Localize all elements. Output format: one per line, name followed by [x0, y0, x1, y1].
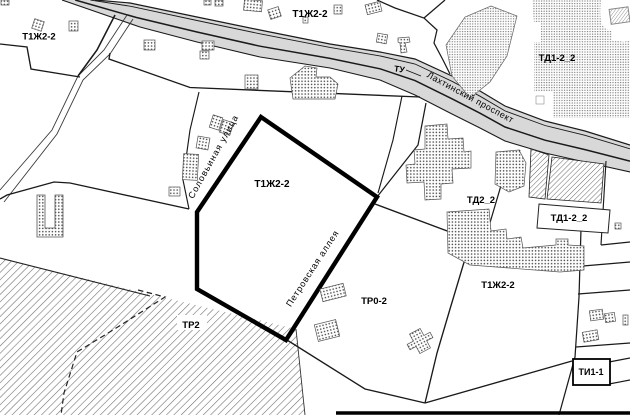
svg-text:ТИ1-1: ТИ1-1: [579, 367, 604, 377]
svg-text:ТР0-2: ТР0-2: [361, 296, 387, 307]
svg-text:Т1Ж2-2: Т1Ж2-2: [22, 32, 55, 43]
svg-text:Т1Ж2-2: Т1Ж2-2: [254, 179, 290, 190]
svg-text:ТУ: ТУ: [394, 63, 406, 74]
svg-text:Т1Ж2-2: Т1Ж2-2: [292, 9, 328, 20]
svg-text:Т1Ж2-2: Т1Ж2-2: [481, 280, 514, 291]
svg-text:ТД1-2_2: ТД1-2_2: [539, 53, 576, 64]
svg-text:ТР2: ТР2: [182, 320, 199, 331]
svg-text:ТД1-2_2: ТД1-2_2: [551, 213, 588, 224]
svg-text:ТД2_2: ТД2_2: [467, 195, 495, 206]
